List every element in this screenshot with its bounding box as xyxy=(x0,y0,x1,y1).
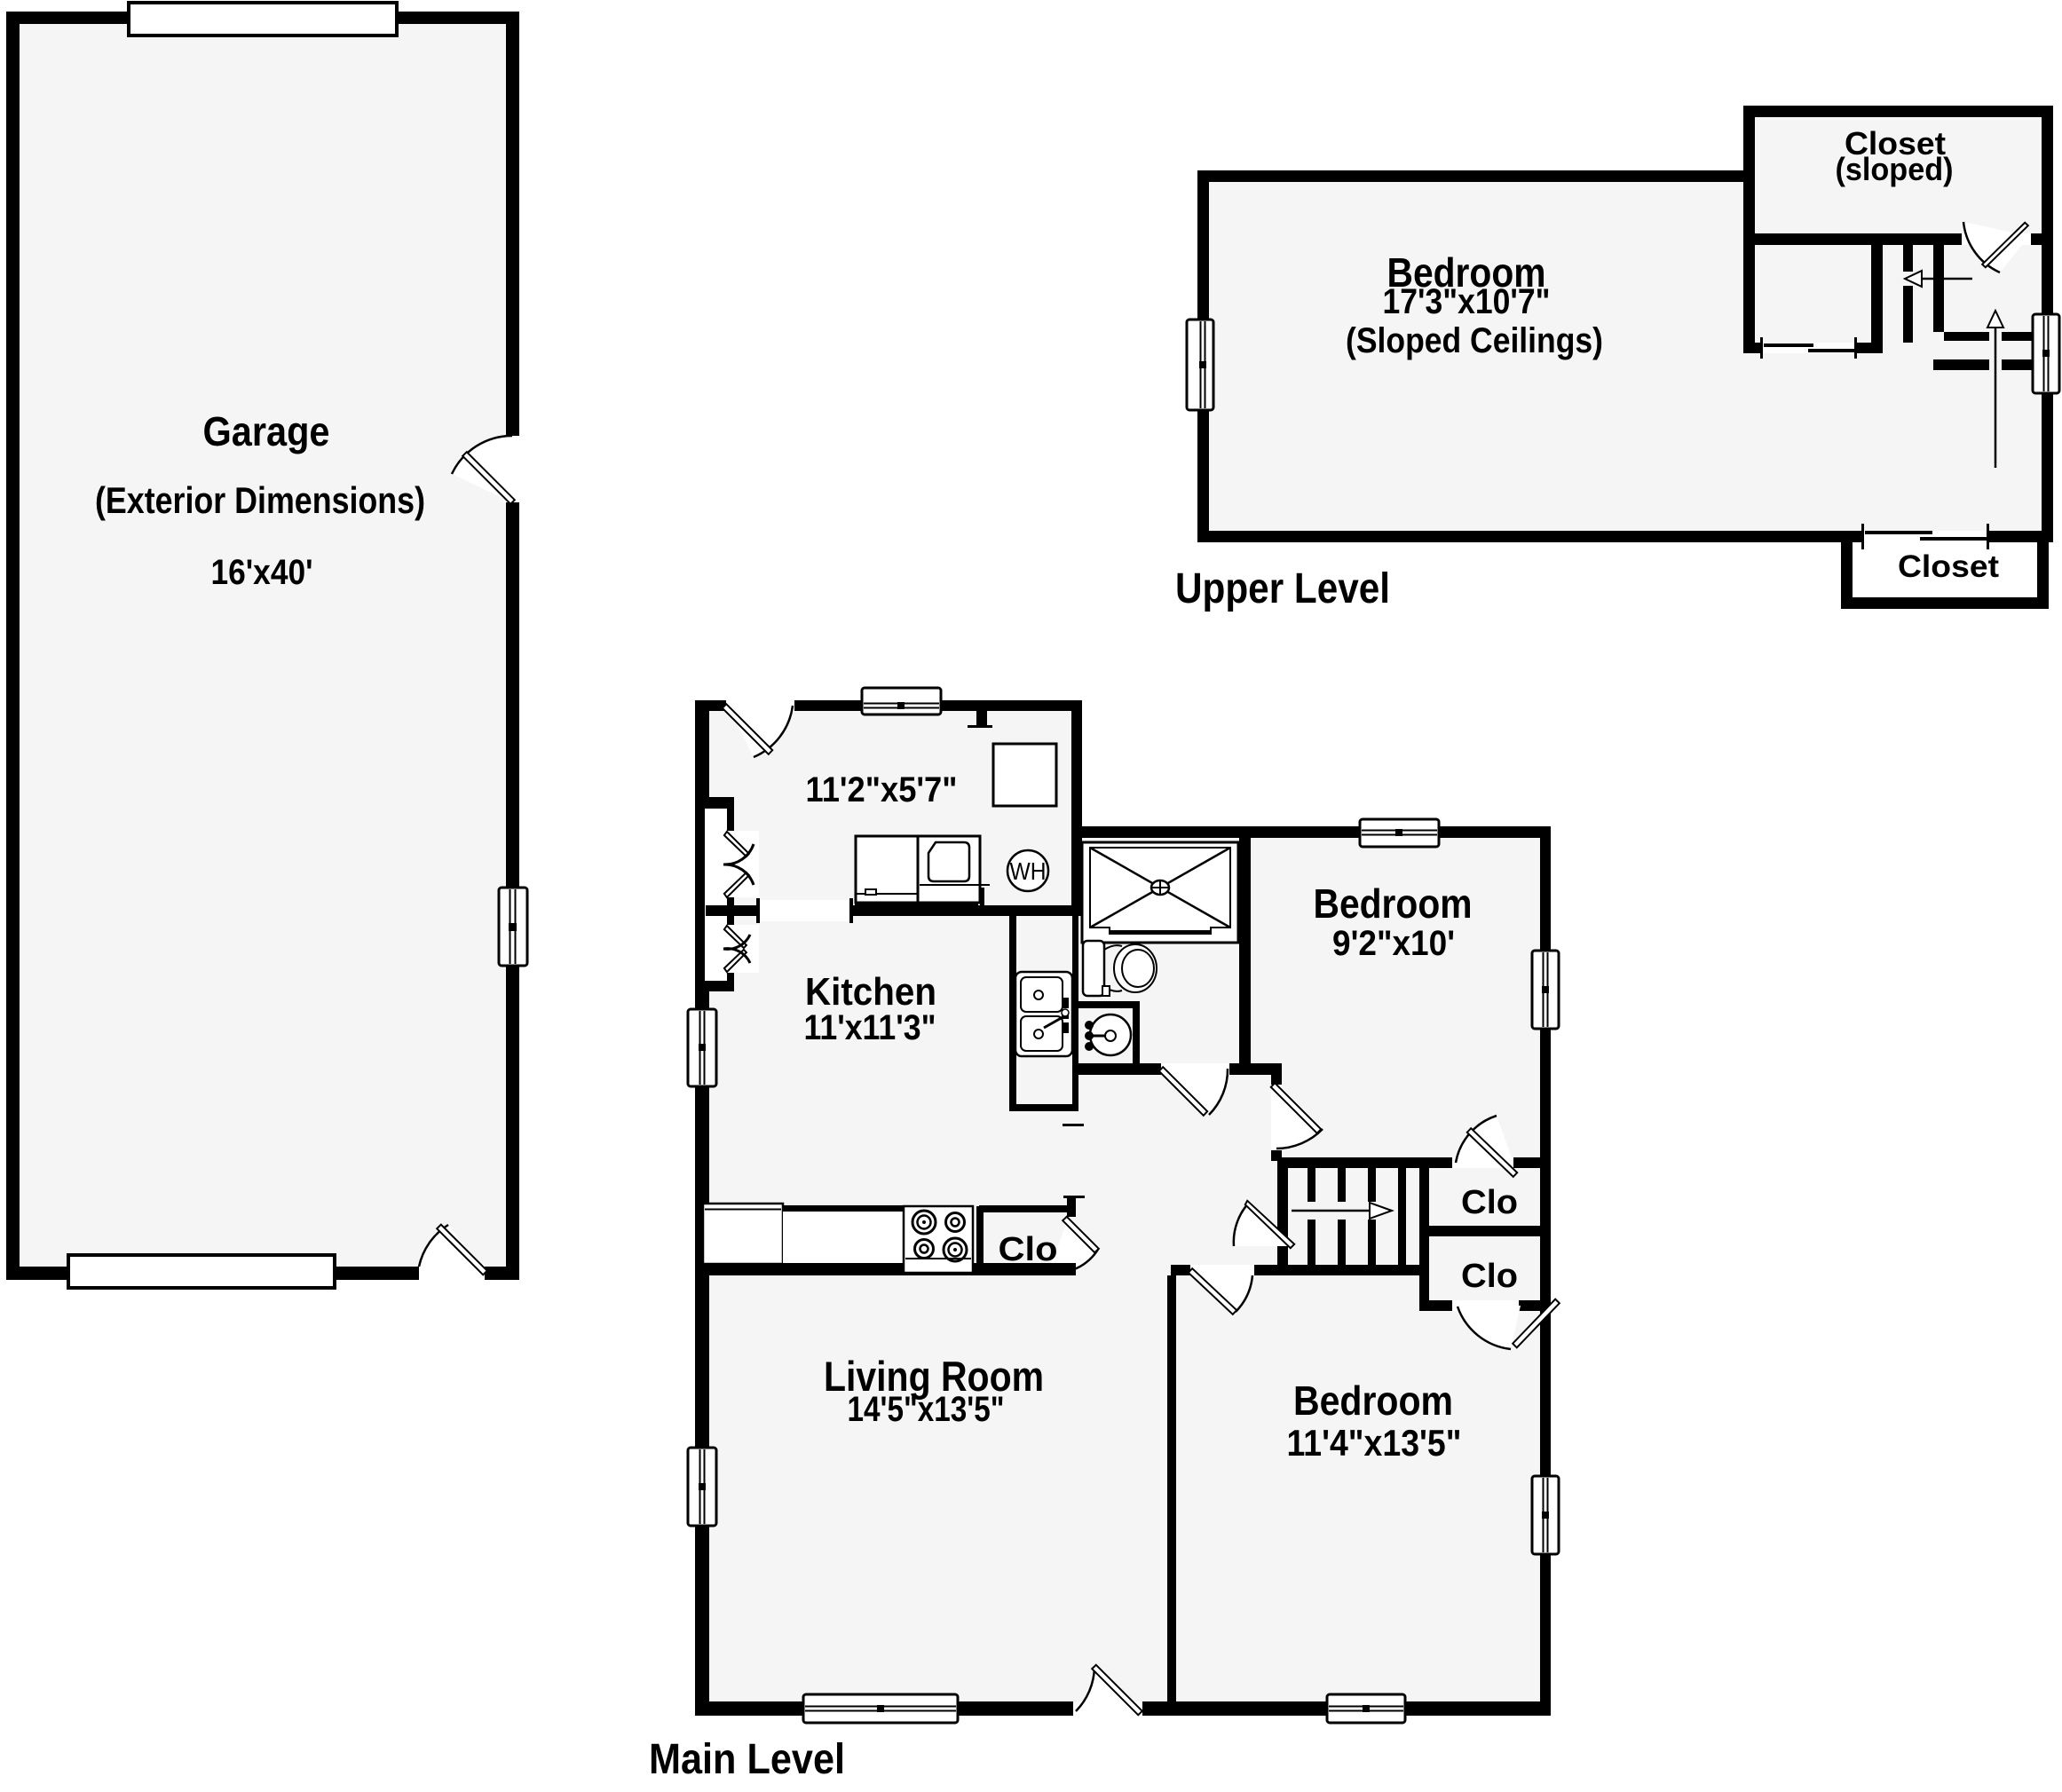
svg-text:Clo: Clo xyxy=(999,1231,1058,1268)
svg-text:Clo: Clo xyxy=(1461,1184,1518,1221)
svg-text:Closet: Closet xyxy=(1898,549,1999,584)
svg-text:WH: WH xyxy=(1010,857,1047,885)
svg-text:Clo: Clo xyxy=(1461,1258,1518,1295)
svg-text:Bedroom: Bedroom xyxy=(1314,880,1473,927)
svg-text:11'2"x5'7": 11'2"x5'7" xyxy=(806,770,958,809)
svg-text:Kitchen: Kitchen xyxy=(805,970,936,1014)
svg-text:11'4"x13'5": 11'4"x13'5" xyxy=(1287,1422,1462,1464)
svg-text:17'3"x10'7": 17'3"x10'7" xyxy=(1383,282,1551,321)
svg-text:Main Level: Main Level xyxy=(649,1736,845,1783)
svg-text:Bedroom: Bedroom xyxy=(1293,1378,1453,1424)
svg-text:9'2"x10': 9'2"x10' xyxy=(1332,924,1455,963)
svg-text:(Sloped Ceilings): (Sloped Ceilings) xyxy=(1346,321,1603,360)
svg-text:14'5"x13'5": 14'5"x13'5" xyxy=(848,1390,1005,1429)
svg-text:(Exterior Dimensions): (Exterior Dimensions) xyxy=(95,479,425,521)
svg-text:Upper Level: Upper Level xyxy=(1175,565,1390,612)
svg-text:11'x11'3": 11'x11'3" xyxy=(804,1008,936,1047)
svg-text:16'x40': 16'x40' xyxy=(211,553,313,592)
svg-text:(sloped): (sloped) xyxy=(1836,151,1954,187)
svg-text:Garage: Garage xyxy=(203,408,330,454)
